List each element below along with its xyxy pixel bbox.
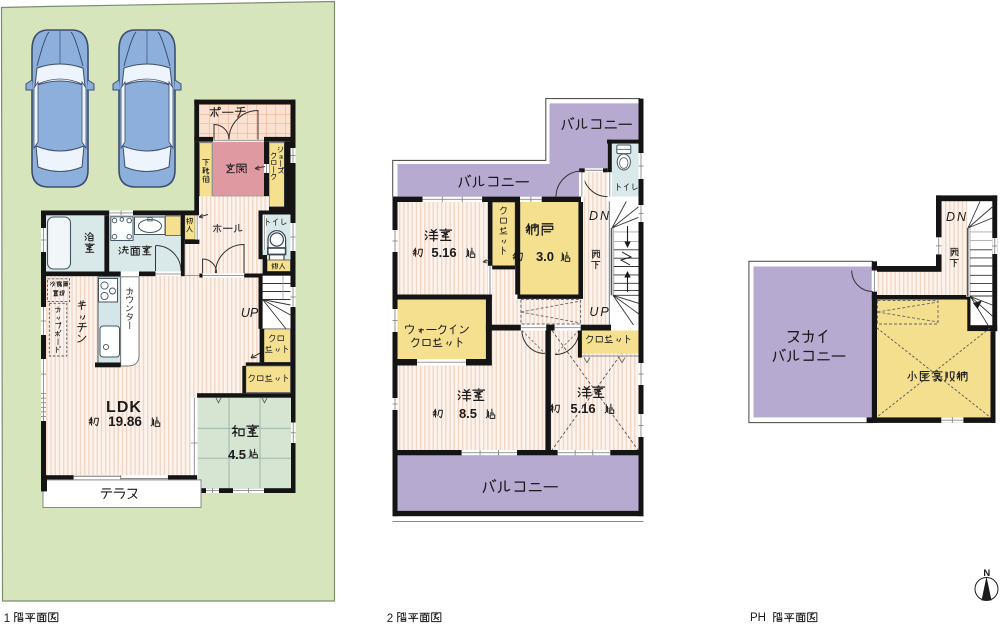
svg-text:1: 1	[4, 613, 10, 625]
svg-text:5.16: 5.16	[570, 401, 595, 416]
svg-text:19.86: 19.86	[108, 414, 142, 429]
svg-text:UP: UP	[241, 306, 259, 320]
svg-text:UP: UP	[589, 305, 610, 319]
svg-text:DN: DN	[589, 209, 611, 223]
svg-text:5.16: 5.16	[431, 245, 456, 260]
svg-text:2: 2	[387, 613, 393, 625]
svg-text:N: N	[983, 568, 990, 579]
svg-text:8.5: 8.5	[459, 406, 477, 421]
svg-text:4.5: 4.5	[228, 447, 246, 462]
svg-text:PH: PH	[750, 612, 766, 624]
svg-text:DN: DN	[946, 210, 968, 224]
svg-text:3.0: 3.0	[536, 249, 554, 264]
